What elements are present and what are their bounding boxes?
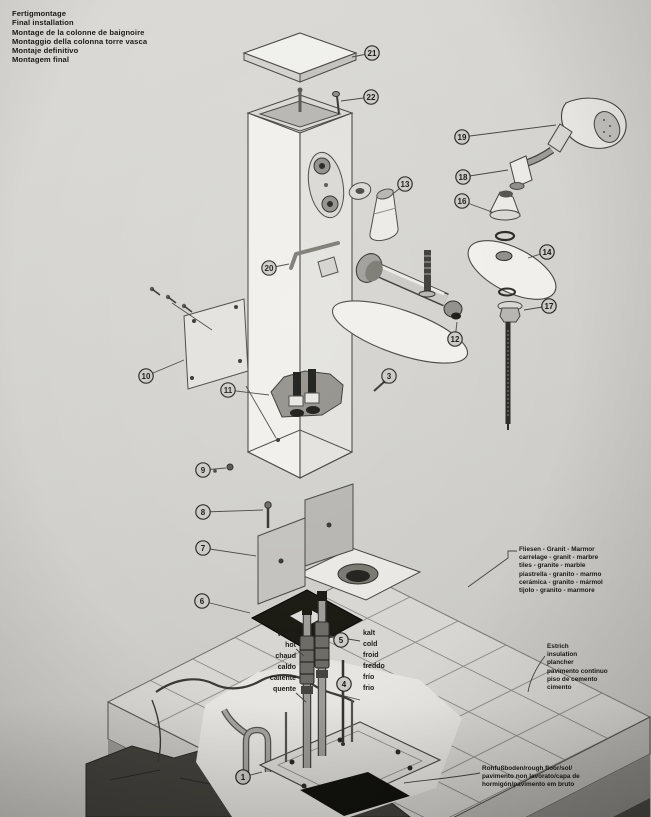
svg-text:1: 1 xyxy=(241,773,246,782)
rough-floor-label: Rohfußboden/rough floor/sol/ pavimento n… xyxy=(482,765,580,790)
title-block: Fertigmontage Final installation Montage… xyxy=(12,9,147,65)
callout-3: 3 xyxy=(382,369,396,383)
callout-19: 19 xyxy=(455,125,556,144)
svg-text:16: 16 xyxy=(458,197,467,206)
svg-text:19: 19 xyxy=(458,133,467,142)
title-line: Montaggio della colonna torre vasca xyxy=(12,37,147,46)
svg-text:22: 22 xyxy=(367,93,376,102)
handshower-group xyxy=(459,98,626,430)
svg-text:6: 6 xyxy=(200,597,205,606)
title-line: Final installation xyxy=(12,18,147,27)
svg-text:18: 18 xyxy=(459,173,468,182)
hot-water-label: warm hot chaud caldo caliente quente xyxy=(236,629,296,695)
title-line: Fertigmontage xyxy=(12,9,147,18)
hex-nut xyxy=(500,308,520,322)
svg-text:17: 17 xyxy=(545,302,554,311)
cold-water-label: kalt cold froid freddo frío frio xyxy=(363,628,385,694)
spout-tube xyxy=(378,270,446,300)
screw-9 xyxy=(227,464,233,470)
cold-pipe-cap xyxy=(317,591,327,601)
callout-14: 14 xyxy=(528,245,554,259)
callout-17: 17 xyxy=(524,299,556,313)
svg-text:21: 21 xyxy=(368,49,377,58)
svg-text:14: 14 xyxy=(543,248,552,257)
callout-18: 18 xyxy=(456,170,508,184)
callout-6: 6 xyxy=(195,594,250,613)
svg-text:13: 13 xyxy=(401,180,410,189)
svg-text:12: 12 xyxy=(451,335,460,344)
callout-16: 16 xyxy=(455,194,492,212)
svg-text:4: 4 xyxy=(342,680,347,689)
callout-10: 10 xyxy=(139,360,184,383)
svg-text:10: 10 xyxy=(142,372,151,381)
callout-8: 8 xyxy=(196,505,263,519)
svg-text:7: 7 xyxy=(201,544,206,553)
cold-valve xyxy=(315,622,329,668)
title-line: Montagem final xyxy=(12,55,147,64)
svg-text:11: 11 xyxy=(224,386,233,395)
handshower-holder xyxy=(347,180,398,241)
svg-text:5: 5 xyxy=(339,636,344,645)
callout-12: 12 xyxy=(448,322,462,346)
exploded-installation-diagram: 21221918161314171220101139876541 xyxy=(0,0,651,817)
access-panel xyxy=(150,287,248,389)
screed-label: Estrich insulation plancher pavimento co… xyxy=(547,643,608,692)
hot-pipe-cap xyxy=(302,605,312,615)
svg-text:8: 8 xyxy=(201,508,206,517)
title-line: Montaje definitivo xyxy=(12,46,147,55)
screw-3 xyxy=(374,382,384,391)
hot-valve xyxy=(300,636,314,684)
svg-text:20: 20 xyxy=(265,264,274,273)
column-left-face xyxy=(248,113,300,478)
svg-text:3: 3 xyxy=(387,372,392,381)
svg-text:9: 9 xyxy=(201,466,206,475)
callout-7: 7 xyxy=(196,541,256,556)
callout-9: 9 xyxy=(196,463,226,477)
callout-22: 22 xyxy=(341,90,378,104)
callout-13: 13 xyxy=(394,177,412,193)
tiles-label: Fliesen - Granit - Marmor carrelage - gr… xyxy=(519,546,603,595)
top-cap xyxy=(244,33,356,82)
o-ring xyxy=(496,232,514,240)
title-line: Montage de la colonne de baignoire xyxy=(12,28,147,37)
scanned-manual-page: { "colors": {"ink":"#3a3935","page":"#d3… xyxy=(0,0,651,817)
